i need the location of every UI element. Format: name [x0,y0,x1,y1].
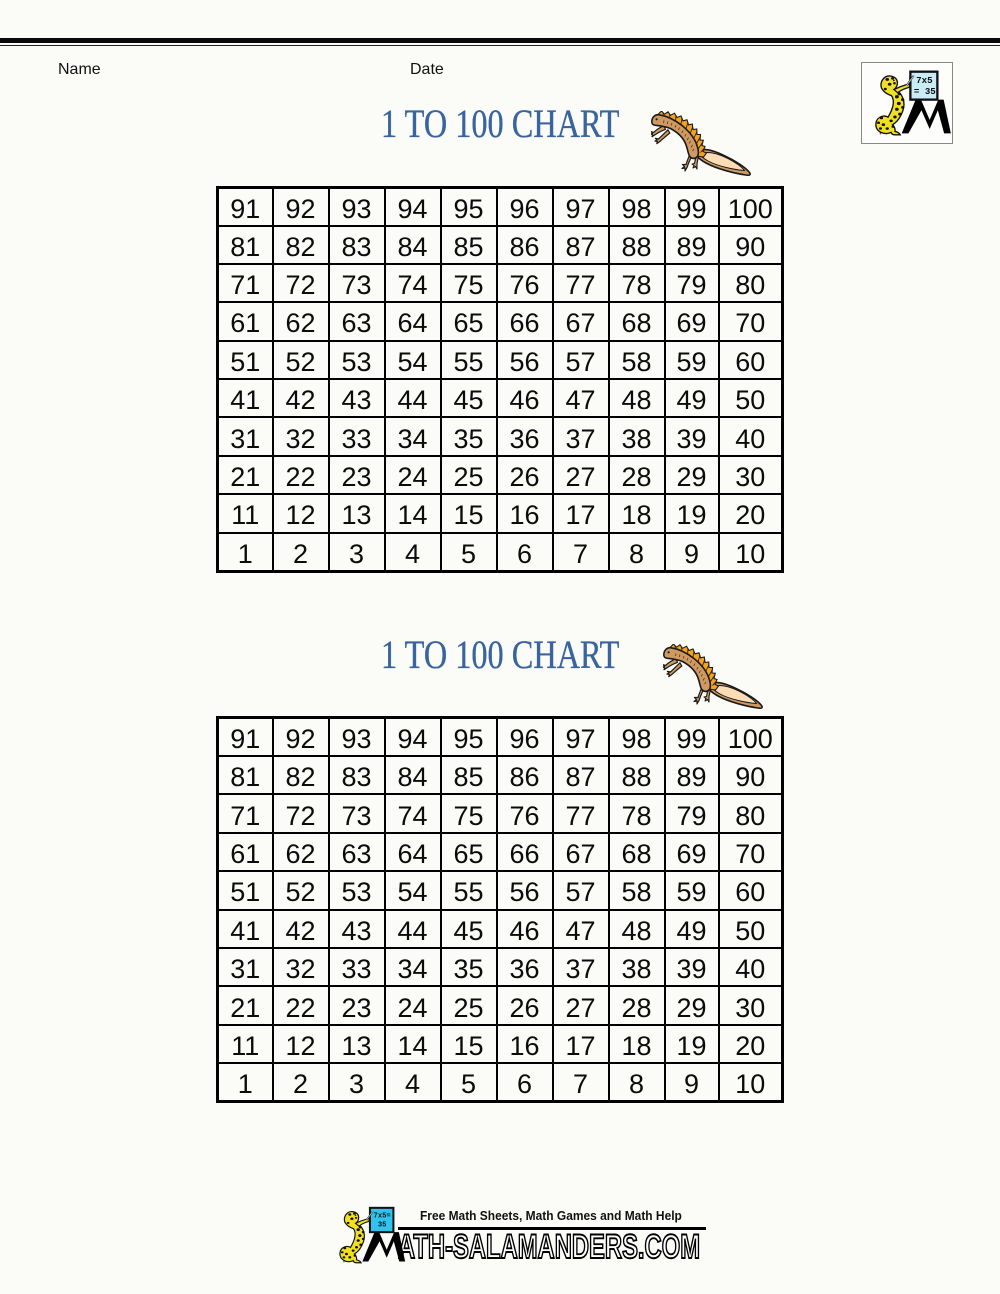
svg-text:ATH-SALAMANDERS.COM: ATH-SALAMANDERS.COM [398,1229,700,1265]
svg-text:35: 35 [378,1221,387,1229]
svg-text:7x5=: 7x5= [374,1212,391,1220]
